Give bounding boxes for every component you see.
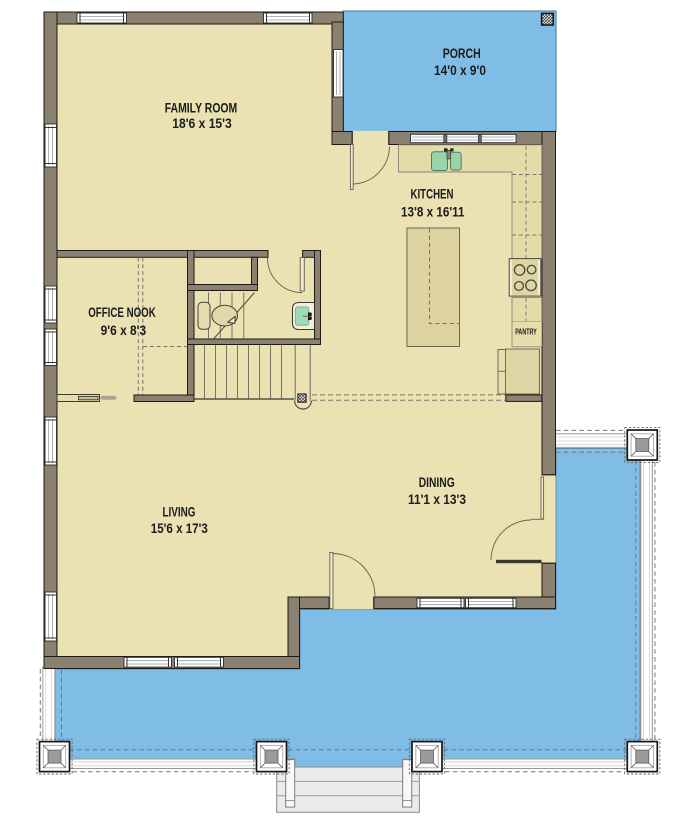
svg-text:15'6 x 17'3: 15'6 x 17'3 — [151, 521, 208, 536]
svg-text:13'8 x 16'11: 13'8 x 16'11 — [401, 204, 465, 219]
svg-text:9'6 x 8'3: 9'6 x 8'3 — [101, 323, 147, 338]
svg-text:14'0 x 9'0: 14'0 x 9'0 — [434, 63, 486, 78]
svg-text:FAMILY ROOM: FAMILY ROOM — [165, 101, 238, 116]
svg-text:PORCH: PORCH — [443, 46, 481, 61]
svg-text:PANTRY: PANTRY — [515, 328, 537, 337]
svg-text:OFFICE NOOK: OFFICE NOOK — [88, 305, 156, 320]
svg-text:LIVING: LIVING — [163, 504, 196, 519]
svg-text:DINING: DINING — [419, 475, 455, 490]
svg-text:11'1 x 13'3: 11'1 x 13'3 — [408, 492, 466, 507]
svg-text:18'6 x 15'3: 18'6 x 15'3 — [172, 116, 232, 131]
svg-text:KITCHEN: KITCHEN — [411, 186, 454, 201]
